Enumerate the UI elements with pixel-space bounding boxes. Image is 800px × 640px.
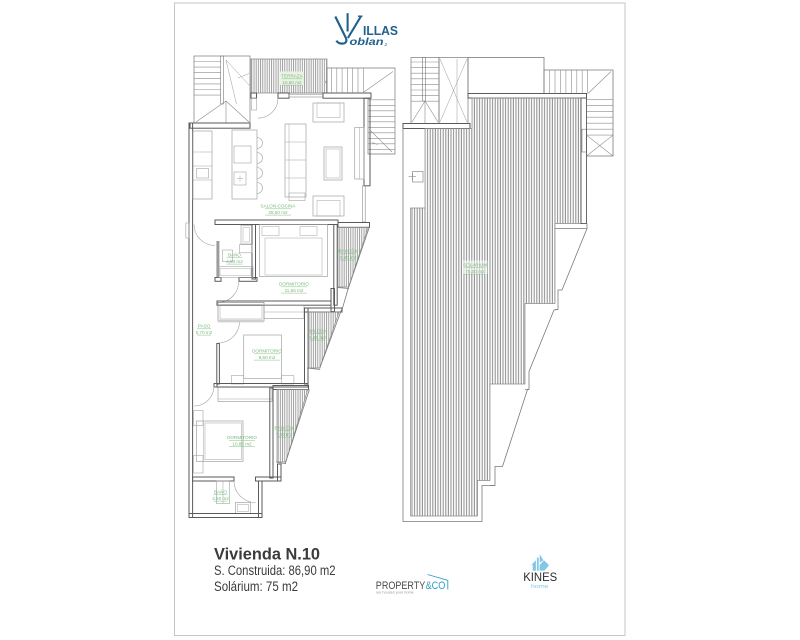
svg-text:7,90 m2: 7,90 m2 [309, 335, 326, 340]
svg-text:2: 2 [384, 42, 388, 48]
svg-text:7,90 m2: 7,90 m2 [340, 255, 357, 260]
svg-text:75,00 m2: 75,00 m2 [465, 269, 485, 274]
svg-text:S. Construida: 86,90 m2: S. Construida: 86,90 m2 [214, 563, 336, 578]
svg-text:&CO: &CO [426, 580, 446, 592]
svg-text:BAÑO: BAÑO [214, 489, 227, 495]
svg-text:PASO: PASO [198, 324, 211, 329]
svg-text:9,50 m2: 9,50 m2 [259, 355, 276, 360]
svg-text:11,65 m2: 11,65 m2 [285, 288, 304, 293]
svg-text:our houses your home: our houses your home [376, 591, 414, 595]
svg-text:2,50 m2: 2,50 m2 [212, 496, 229, 501]
svg-text:BALCÓN: BALCÓN [308, 328, 327, 334]
svg-text:BAÑO: BAÑO [228, 252, 241, 258]
svg-text:SOLARIUM: SOLARIUM [463, 263, 487, 268]
svg-text:KINES: KINES [523, 570, 557, 584]
svg-text:Solárium: 75 m2: Solárium: 75 m2 [214, 579, 298, 594]
svg-text:15,60 m2: 15,60 m2 [282, 80, 302, 85]
svg-text:SALON-COCINA: SALON-COCINA [261, 204, 297, 209]
svg-text:DORMITORIO: DORMITORIO [252, 349, 282, 354]
svg-text:BALCÓN: BALCÓN [275, 425, 294, 431]
svg-text:4,80 m2: 4,80 m2 [226, 259, 243, 264]
svg-text:ILLAS: ILLAS [363, 23, 398, 38]
svg-text:home: home [531, 584, 549, 590]
svg-text:10,85 m2: 10,85 m2 [232, 441, 252, 446]
svg-text:DORMITORIO: DORMITORIO [279, 282, 309, 287]
svg-text:7,80 m2: 7,80 m2 [276, 432, 293, 437]
svg-text:Vivienda N.10: Vivienda N.10 [214, 545, 320, 564]
svg-text:DORMITORIO: DORMITORIO [227, 435, 257, 440]
svg-text:oblan: oblan [350, 37, 384, 48]
svg-text:5,70 m2: 5,70 m2 [196, 330, 213, 335]
svg-text:TERRAZA: TERRAZA [281, 74, 303, 79]
svg-text:BALCÓN: BALCÓN [339, 248, 358, 254]
svg-text:28,50 m2: 28,50 m2 [268, 210, 288, 215]
